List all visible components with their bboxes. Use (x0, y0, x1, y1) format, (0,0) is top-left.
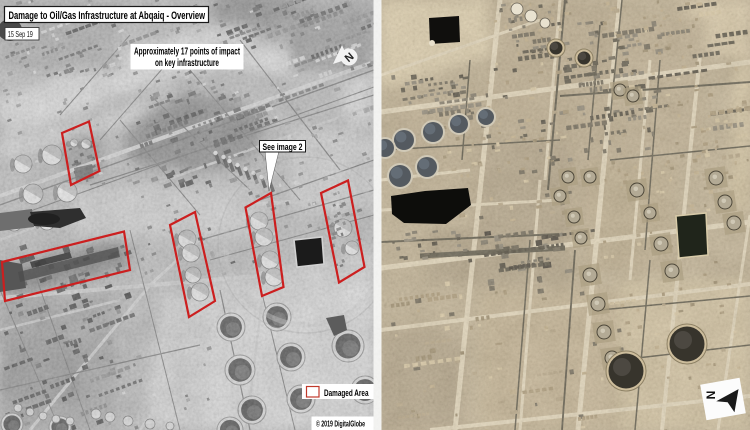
svg-text:on key infrastructure: on key infrastructure (155, 58, 219, 69)
svg-text:Damaged Area: Damaged Area (324, 387, 369, 398)
svg-text:15 Sep 19: 15 Sep 19 (8, 30, 33, 39)
svg-text:Damage to Oil/Gas Infrastructu: Damage to Oil/Gas Infrastructure at Abqa… (9, 10, 206, 22)
svg-text:N: N (704, 391, 718, 400)
svg-text:© 2019 DigitalGlobe: © 2019 DigitalGlobe (316, 419, 365, 428)
svg-text:See image 2: See image 2 (263, 142, 303, 152)
svg-text:Approximately 17 points of imp: Approximately 17 points of impact (134, 47, 240, 58)
